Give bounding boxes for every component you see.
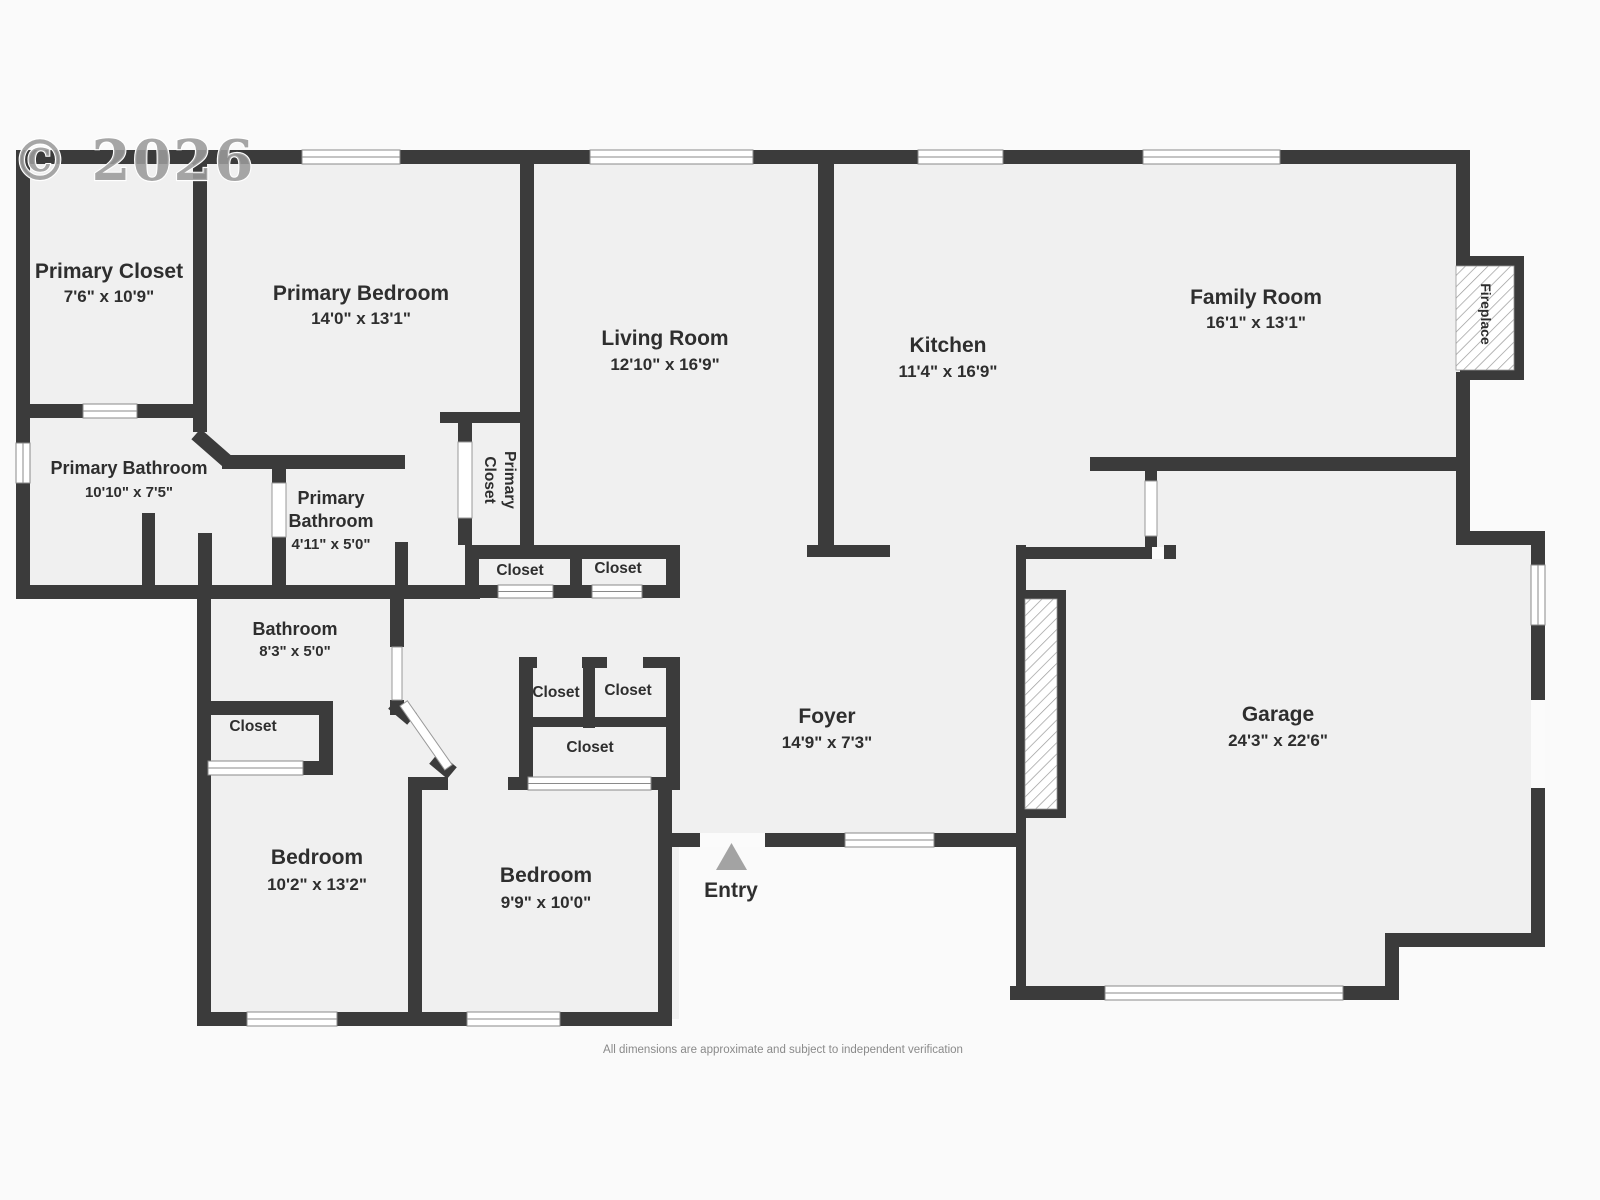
wall	[666, 657, 680, 790]
vertical-primary-closet-label-2: Closet	[481, 456, 498, 503]
closet-label-3: Closet	[532, 684, 579, 701]
wall	[197, 585, 211, 1026]
wall	[198, 533, 212, 585]
room-dims-foyer: 14'9" x 7'3"	[782, 733, 872, 752]
wall	[272, 537, 286, 599]
room-label-bedroom-1: Bedroom	[271, 846, 363, 869]
room-label-kitchen: Kitchen	[909, 334, 986, 357]
wall	[1145, 536, 1157, 547]
wall	[934, 833, 1016, 847]
wall	[16, 585, 480, 599]
wall	[1016, 590, 1025, 818]
wall	[519, 717, 680, 727]
closet-label-4: Closet	[604, 682, 651, 699]
wall	[1090, 457, 1470, 471]
wall	[272, 463, 286, 483]
wall	[1463, 531, 1545, 545]
wall	[553, 585, 592, 598]
room-dims-family-room: 16'1" x 13'1"	[1206, 313, 1306, 332]
wall	[1531, 625, 1545, 700]
room-label-primary-bedroom: Primary Bedroom	[273, 282, 449, 305]
room-label-bedroom-2: Bedroom	[500, 864, 592, 887]
wall	[197, 701, 333, 715]
wall	[458, 518, 472, 545]
door-leaf	[392, 647, 402, 700]
wall	[337, 1012, 467, 1026]
wall	[1164, 545, 1176, 559]
room-label-primary-bathroom: Primary Bathroom	[50, 458, 207, 478]
wall	[658, 777, 672, 1026]
room-label-primary-bathroom-2a: Primary	[297, 488, 364, 508]
wall	[408, 777, 422, 1026]
wall	[560, 1012, 672, 1026]
wall	[807, 545, 890, 557]
wall	[193, 164, 207, 432]
wall	[1460, 370, 1524, 380]
room-dims-living-room: 12'10" x 16'9"	[610, 355, 719, 374]
room-label-bathroom: Bathroom	[253, 619, 338, 639]
wall	[1456, 150, 1470, 266]
wall	[765, 833, 845, 847]
entry-label: Entry	[704, 879, 758, 902]
wall	[1145, 471, 1157, 481]
closet-label-2: Closet	[594, 560, 641, 577]
wall	[465, 545, 680, 559]
vertical-primary-closet-label-1: Primary	[501, 451, 518, 509]
door-leaf	[1145, 481, 1157, 536]
entry-arrow-icon	[716, 843, 747, 870]
wall-opening	[1152, 547, 1164, 559]
geometry-layer	[16, 150, 1545, 1026]
wall	[16, 404, 83, 418]
wall	[582, 657, 607, 668]
floor-plan-page: Primary Closet 7'6" x 10'9" Primary Bedr…	[0, 0, 1600, 1200]
closet-label-1: Closet	[496, 562, 543, 579]
room-dims-bedroom-2: 9'9" x 10'0"	[501, 893, 591, 912]
wall	[222, 455, 405, 469]
room-label-family-room: Family Room	[1190, 286, 1322, 309]
wall	[142, 513, 155, 585]
room-dims-primary-bathroom: 10'10" x 7'5"	[85, 484, 173, 501]
door-leaf	[272, 483, 286, 537]
wall-opening	[1531, 700, 1545, 788]
copyright-watermark: © 2026	[12, 128, 255, 194]
closet-label-5: Closet	[566, 739, 613, 756]
closet-label-6: Closet	[229, 718, 276, 735]
wall	[16, 150, 30, 599]
wall	[1514, 256, 1524, 380]
room-dims-bedroom-1: 10'2" x 13'2"	[267, 875, 367, 894]
room-label-primary-bathroom-2b: Bathroom	[289, 511, 374, 531]
wall	[1057, 590, 1066, 818]
wall	[1343, 986, 1399, 1000]
fireplace-label: Fireplace	[1478, 283, 1494, 345]
room-dims-garage: 24'3" x 22'6"	[1228, 731, 1328, 750]
wall	[197, 761, 208, 775]
disclaimer-text: All dimensions are approximate and subje…	[603, 1044, 963, 1056]
room-label-foyer: Foyer	[798, 705, 855, 728]
wall	[440, 412, 534, 423]
door-leaf	[458, 442, 472, 518]
wall	[1531, 545, 1545, 565]
wall	[408, 777, 448, 790]
room-label-primary-closet: Primary Closet	[35, 260, 183, 283]
wall	[395, 542, 408, 599]
wall	[465, 585, 498, 598]
wall	[519, 657, 537, 668]
room-dims-kitchen: 11'4" x 16'9"	[899, 362, 998, 381]
wall	[520, 164, 534, 559]
room-label-garage: Garage	[1242, 703, 1314, 726]
wall	[390, 599, 404, 647]
floor-plan-svg: Primary Closet 7'6" x 10'9" Primary Bedr…	[0, 0, 1600, 1200]
room-dims-primary-bedroom: 14'0" x 13'1"	[311, 309, 411, 328]
wall	[1016, 547, 1152, 559]
wall	[1010, 986, 1105, 1000]
wall	[303, 761, 333, 775]
hatched-area	[1025, 599, 1057, 809]
floor-area	[1026, 933, 1399, 993]
wall	[642, 585, 680, 598]
room-label-living-room: Living Room	[601, 327, 728, 350]
room-dims-primary-bathroom-2: 4'11" x 5'0"	[292, 536, 371, 553]
door-opening	[607, 657, 643, 668]
wall	[818, 164, 834, 545]
wall	[1385, 933, 1545, 947]
door-opening	[537, 657, 582, 668]
room-dims-bathroom: 8'3" x 5'0"	[259, 643, 330, 660]
wall	[1531, 788, 1545, 947]
room-dims-primary-closet: 7'6" x 10'9"	[64, 287, 154, 306]
